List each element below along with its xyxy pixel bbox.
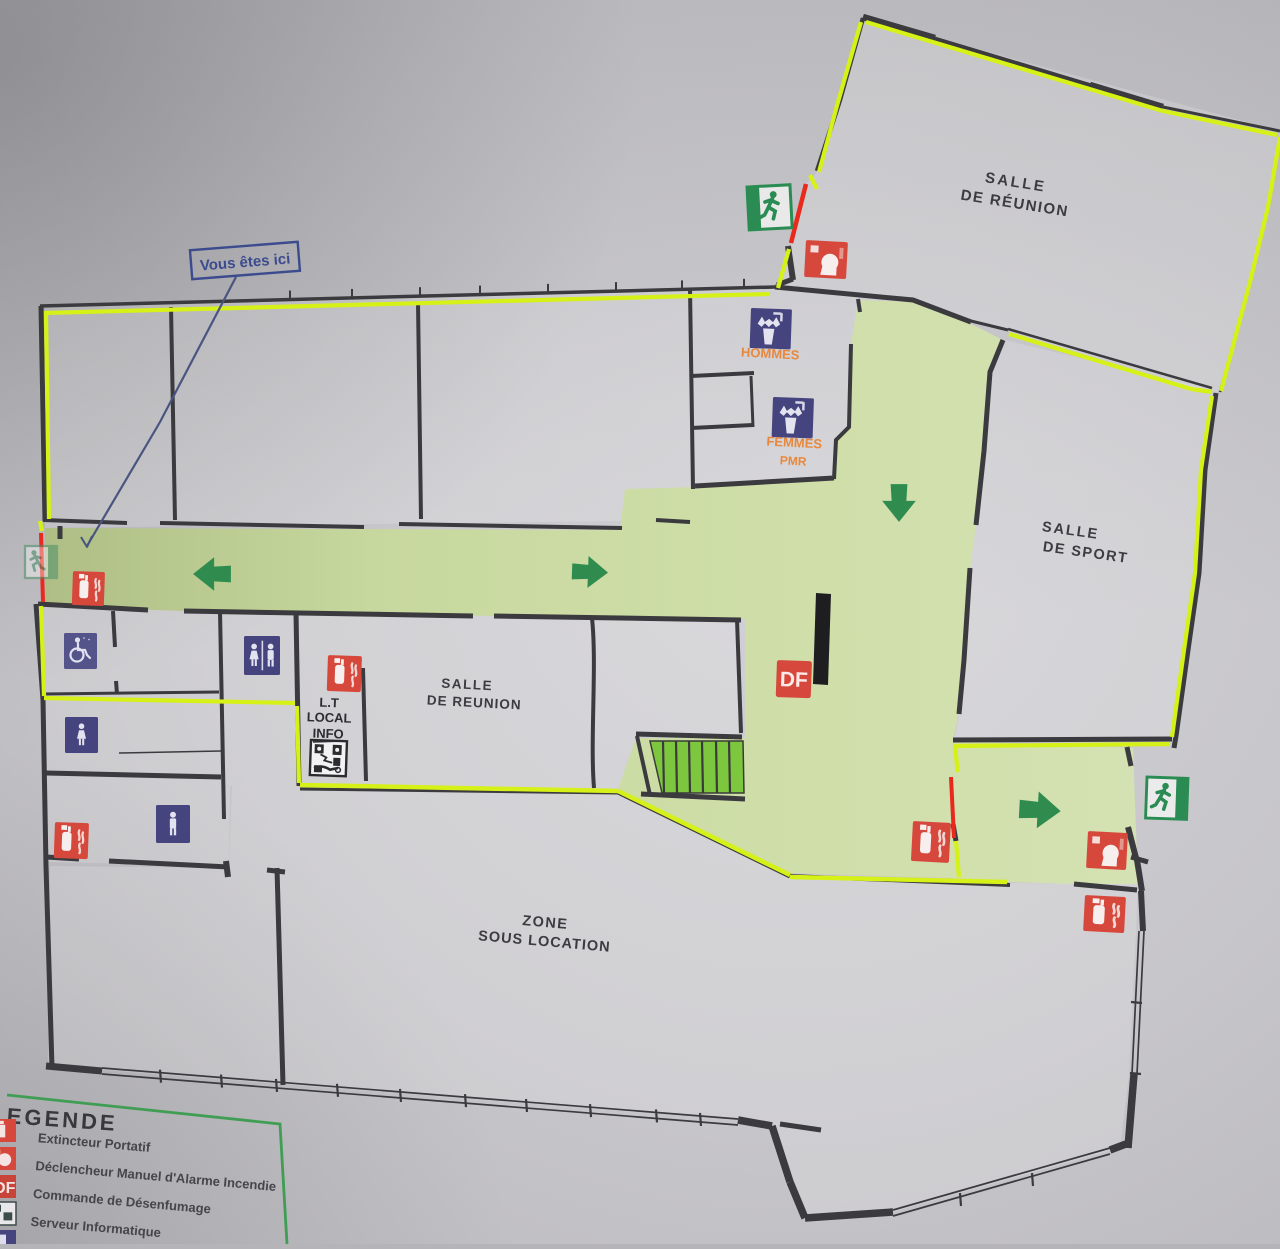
svg-text:SALLE: SALLE xyxy=(441,676,493,694)
svg-text:L.T: L.T xyxy=(319,695,339,711)
svg-text:DF: DF xyxy=(0,1179,16,1197)
svg-text:FEMMES: FEMMES xyxy=(766,434,823,452)
svg-text:DF: DF xyxy=(779,668,808,692)
svg-text:PMR: PMR xyxy=(780,453,808,468)
svg-text:INFO: INFO xyxy=(312,725,344,741)
svg-text:HOMMES: HOMMES xyxy=(741,344,801,362)
svg-text:LOCAL: LOCAL xyxy=(307,709,352,726)
